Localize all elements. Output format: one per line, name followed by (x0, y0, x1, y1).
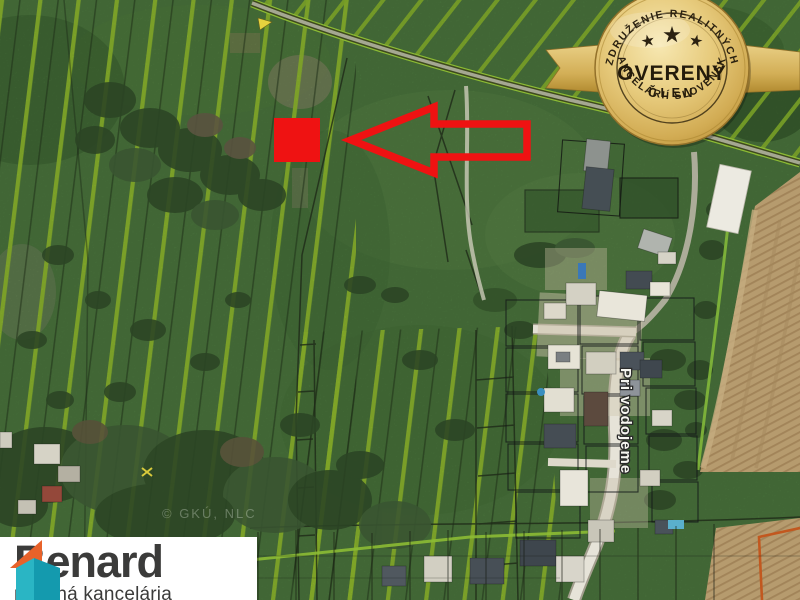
benard-cube-icon (4, 538, 74, 600)
street-label: Pri vodojeme (617, 368, 634, 474)
copyright-watermark: © GKÚ, NLC (162, 506, 257, 521)
badge-title: OVERENÝ (617, 61, 727, 85)
target-parcel-marker (274, 118, 320, 162)
pool (537, 388, 545, 396)
agency-logo: Benard realitná kancelária (0, 537, 257, 600)
listing-photo: Pri vodojeme © GKÚ, NLC ZDRUŽENIE REALIT… (0, 0, 800, 600)
badge-subtitle: ČLEN (648, 85, 696, 100)
satellite-map: Pri vodojeme © GKÚ, NLC ZDRUŽENIE REALIT… (0, 0, 800, 600)
